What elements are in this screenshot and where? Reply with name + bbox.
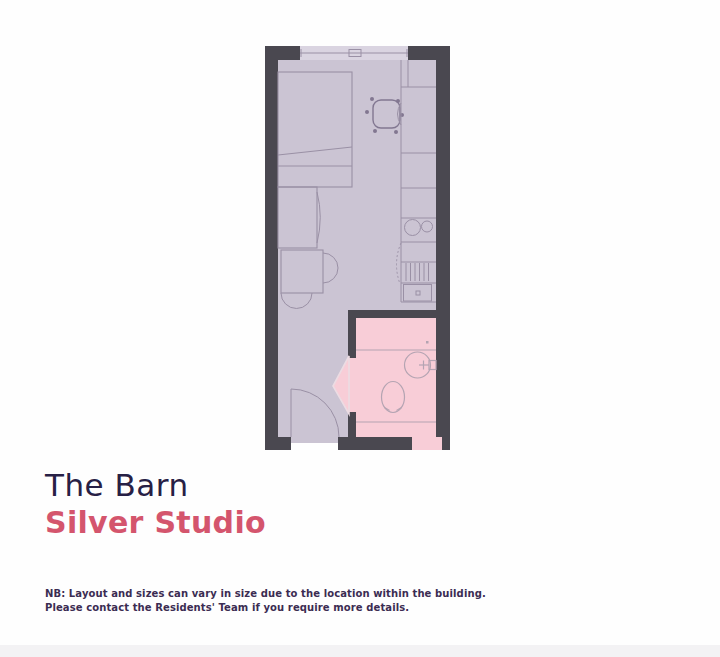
- bathroom-floor-extension: [412, 437, 442, 450]
- floorplan-drawing: [265, 46, 450, 450]
- bathroom: [333, 310, 442, 450]
- unit-name: Silver Studio: [45, 504, 266, 542]
- disclaimer: NB: Layout and sizes can vary in size du…: [45, 587, 486, 614]
- footer-band: [0, 645, 720, 657]
- bathroom-wall-left-upper: [348, 310, 356, 358]
- page: The Barn Silver Studio NB: Layout and si…: [0, 0, 720, 657]
- disclaimer-line-1: NB: Layout and sizes can vary in size du…: [45, 587, 486, 601]
- heading: The Barn Silver Studio: [45, 466, 266, 542]
- floorplan: [265, 46, 450, 450]
- bathroom-floor: [356, 318, 436, 437]
- window: [300, 46, 408, 60]
- disclaimer-line-2: Please contact the Residents' Team if yo…: [45, 601, 486, 615]
- shower-drain: [426, 341, 429, 344]
- building-name: The Barn: [45, 466, 266, 504]
- bathroom-wall-top: [348, 310, 436, 318]
- entry-opening: [291, 437, 338, 450]
